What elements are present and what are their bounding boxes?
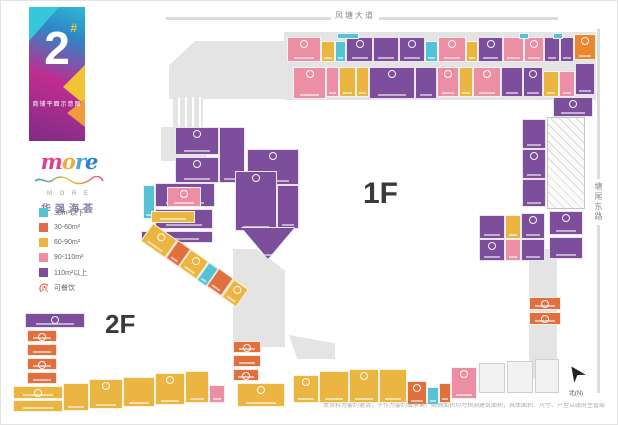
disclaimer-text: 本资料为要约邀请，不作为要约或承诺；商铺面积均为预测建筑面积，具体面积、尺寸、户…: [323, 403, 605, 410]
dining-allowed-icon: [483, 70, 491, 78]
shop-unit: [27, 358, 57, 370]
shop-unit: [529, 297, 561, 310]
dining-allowed-icon: [269, 152, 277, 160]
legend-label: 30-60m²: [54, 224, 80, 231]
legend-item: 90-110m²: [39, 250, 87, 265]
shop-unit: [337, 33, 359, 39]
shop-unit: [522, 119, 546, 149]
dining-allowed-icon: [448, 40, 456, 48]
dining-allowed-icon: [581, 37, 589, 45]
corridor-mass: [169, 41, 287, 99]
compass: 北(N): [561, 363, 591, 397]
legend-label: 110m²以上: [54, 268, 87, 278]
dining-allowed-icon: [257, 386, 265, 394]
legend-item: 可餐饮: [39, 280, 87, 295]
dining-allowed-icon: [166, 376, 174, 384]
shop-unit: [425, 41, 438, 62]
shop-unit: [237, 383, 285, 407]
shop-unit: [167, 187, 201, 207]
legend: 30m²以下30-60m²60-90m²90-110m²110m²以上可餐饮: [39, 205, 87, 295]
legend-color-swatch: [39, 268, 48, 277]
brand-subtext: M O R E: [19, 191, 119, 197]
compass-label: 北(N): [561, 388, 591, 397]
dining-allowed-icon: [102, 382, 110, 390]
shop-unit: [373, 37, 399, 62]
dining-allowed-icon: [356, 40, 364, 48]
shop-unit: [233, 369, 259, 381]
dining-allowed-icon: [408, 40, 416, 48]
legend-color-swatch: [39, 238, 48, 247]
legend-item: 60-90m²: [39, 235, 87, 250]
shop-unit: [501, 67, 523, 97]
brand-wave-underline: [33, 176, 105, 185]
shop-unit: [544, 37, 560, 62]
dining-allowed-icon: [38, 361, 46, 369]
floor-label-2f: 2F: [105, 309, 135, 340]
dining-allowed-icon: [529, 216, 537, 224]
legend-label: 90-110m²: [54, 254, 83, 261]
shop-unit: [438, 37, 466, 62]
dining-allowed-icon: [530, 40, 538, 48]
legend-color-swatch: [39, 208, 48, 217]
shop-unit: [479, 239, 505, 261]
dining-allowed-icon: [388, 70, 396, 78]
shop-unit: [175, 127, 219, 155]
shop-unit: [293, 375, 319, 403]
brand-letter: e: [85, 149, 97, 174]
legend-label: 60-90m²: [54, 239, 80, 246]
legend-label: 可餐饮: [54, 283, 75, 293]
dining-allowed-icon: [300, 40, 308, 48]
dining-allowed-icon: [487, 40, 495, 48]
shop-unit: [523, 67, 543, 97]
brand-letter: o: [62, 149, 75, 174]
shop-unit: [339, 67, 356, 97]
shop-unit: [575, 63, 595, 95]
dining-allowed-icon: [529, 70, 537, 78]
shop-unit: [459, 67, 473, 97]
shop-unit: [369, 67, 415, 99]
dining-allowed-icon: [252, 174, 260, 182]
shop-unit: [574, 34, 596, 60]
shop-unit: [335, 41, 346, 62]
shop-unit: [529, 312, 561, 325]
legend-item: 30m²以下: [39, 205, 87, 220]
shop-unit: [543, 71, 559, 97]
shop-unit: [233, 355, 261, 367]
right-road-label: 塘尾东路: [593, 179, 604, 225]
dining-allowed-icon: [190, 255, 201, 266]
dining-allowed-icon: [444, 70, 452, 78]
legend-item: 30-60m²: [39, 220, 87, 235]
shop-unit: [407, 381, 427, 405]
shop-unit: [439, 383, 451, 403]
shop-unit: [277, 185, 299, 229]
shop-unit: [503, 37, 524, 62]
shop-unit: [553, 33, 563, 39]
dining-allowed-icon: [38, 333, 46, 341]
dining-allowed-icon: [360, 372, 368, 380]
hatched-block: [547, 117, 585, 209]
shop-unit: [399, 37, 425, 62]
banner-subtitle: 商铺平面示意图: [29, 99, 85, 108]
stairs-area: [173, 97, 203, 129]
shop-unit: [349, 369, 379, 403]
shop-unit: [478, 37, 503, 62]
outline-block: [535, 359, 559, 393]
shop-unit: [209, 385, 225, 403]
shop-unit: [549, 211, 583, 235]
shop-unit: [451, 367, 477, 399]
outline-block: [479, 363, 505, 393]
shop-unit: [175, 157, 219, 183]
shop-unit: [123, 377, 155, 407]
dining-allowed-icon: [180, 190, 188, 198]
shop-unit: [549, 237, 583, 259]
brand-letter: r: [75, 149, 85, 174]
dining-allowed-icon: [569, 100, 577, 108]
corridor-mass: [289, 335, 335, 359]
shop-unit: [437, 67, 459, 97]
shop-unit: [185, 371, 209, 403]
shop-unit: [505, 215, 521, 239]
dining-allowed-icon: [243, 344, 251, 352]
top-road-label: 风塘大道: [331, 10, 379, 21]
dining-allowed-icon: [232, 284, 243, 295]
brand-letter: m: [41, 149, 62, 174]
dining-allowed-icon: [242, 372, 250, 380]
dining-allowed-icon: [541, 315, 549, 323]
shop-unit: [151, 211, 195, 223]
dining-allowed-icon: [193, 130, 201, 138]
shop-unit: [560, 37, 574, 62]
dining-allowed-icon: [530, 152, 538, 160]
shop-unit: [13, 400, 63, 412]
shop-unit: [27, 330, 57, 342]
dining-allowed-icon: [34, 389, 42, 397]
shop-unit: [356, 67, 369, 97]
shop-unit: [89, 379, 123, 409]
shop-unit: [559, 71, 575, 97]
shop-unit: [479, 215, 505, 239]
floor-label-1f: 1F: [363, 177, 398, 211]
dining-allowed-icon: [302, 378, 310, 386]
shop-unit: [319, 371, 349, 403]
dining-allowed-icon: [541, 300, 549, 308]
shop-unit: [233, 341, 261, 353]
shop-unit: [63, 383, 89, 411]
dining-icon: [39, 283, 48, 292]
shop-unit: [346, 37, 373, 62]
shop-unit: [521, 239, 545, 261]
shop-unit: [521, 213, 545, 239]
dining-allowed-icon: [562, 214, 570, 222]
floor-plan-page: 风塘大道 塘尾东路 1F 2F 2 # 商铺平面示意图 more M O R E…: [0, 0, 618, 425]
building-number-hash: #: [70, 21, 77, 35]
brand-wordmark: more: [19, 151, 119, 172]
shop-unit: [519, 33, 529, 39]
shop-unit: [27, 372, 57, 384]
building-banner: 2 # 商铺平面示意图: [29, 7, 85, 141]
shop-unit: [235, 171, 277, 231]
shop-unit: [524, 37, 544, 62]
dining-allowed-icon: [306, 70, 314, 78]
dining-allowed-icon: [156, 232, 167, 243]
shop-unit: [321, 41, 335, 62]
shop-unit: [522, 179, 546, 207]
shop-unit: [415, 67, 437, 99]
shop-unit: [293, 67, 326, 99]
north-arrow-icon: [563, 363, 589, 383]
shop-unit: [522, 149, 546, 179]
shop-unit: [553, 97, 593, 117]
shop-unit: [13, 386, 63, 399]
dining-allowed-icon: [51, 316, 59, 324]
shop-unit: [287, 37, 321, 62]
outline-block: [507, 361, 533, 393]
shop-unit: [326, 67, 339, 97]
shop-unit: [505, 239, 521, 261]
shop-unit: [466, 41, 478, 62]
shop-unit: [27, 344, 57, 356]
legend-color-swatch: [39, 253, 48, 262]
legend-color-swatch: [39, 223, 48, 232]
dining-allowed-icon: [193, 160, 201, 168]
shop-unit: [473, 67, 501, 97]
shop-unit: [155, 373, 185, 405]
dining-allowed-icon: [460, 370, 468, 378]
shop-unit: [379, 369, 407, 403]
shop-unit: [25, 313, 85, 328]
legend-label: 30m²以下: [54, 208, 84, 218]
dining-allowed-icon: [413, 384, 421, 392]
legend-item: 110m²以上: [39, 265, 87, 280]
dining-allowed-icon: [488, 242, 496, 250]
